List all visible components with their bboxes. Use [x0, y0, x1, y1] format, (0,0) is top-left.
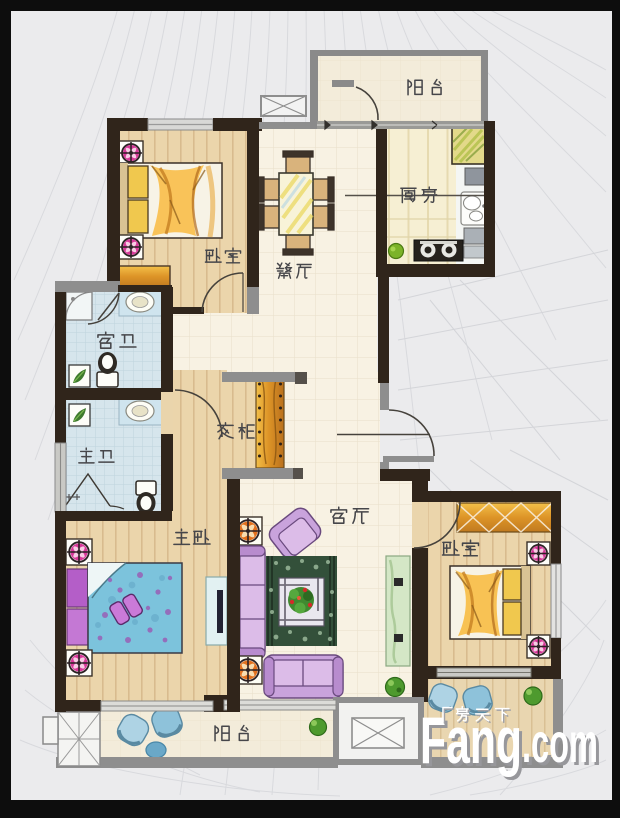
svg-text:.com: .com [522, 711, 598, 774]
